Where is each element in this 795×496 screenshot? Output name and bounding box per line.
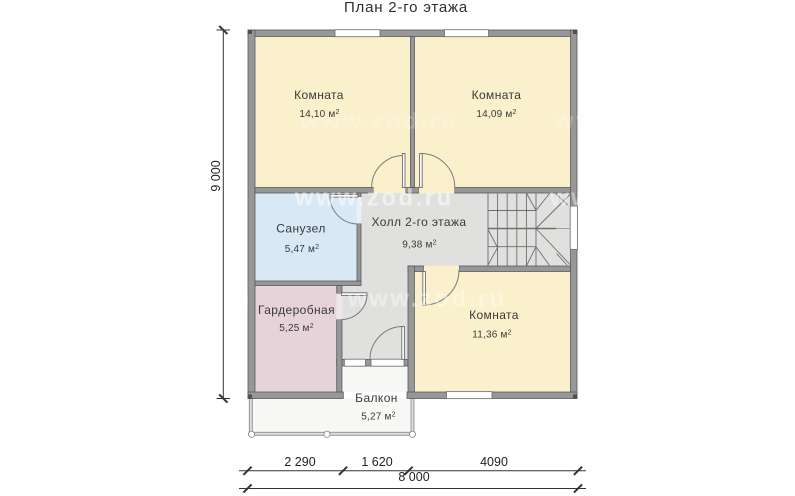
svg-text:2 290: 2 290 (284, 455, 315, 469)
svg-text:Балкон: Балкон (355, 391, 398, 405)
svg-text:www.zod.ru: www.zod.ru (549, 185, 709, 212)
svg-text:План 2-го этажа: План 2-го этажа (344, 0, 468, 16)
svg-text:4090: 4090 (480, 455, 508, 469)
svg-text:Гардеробная: Гардеробная (258, 303, 335, 317)
svg-text:9,38 м2: 9,38 м2 (402, 240, 436, 251)
svg-text:14,10 м2: 14,10 м2 (299, 109, 339, 120)
svg-text:1 620: 1 620 (361, 455, 392, 469)
svg-text:www.zod.ru: www.zod.ru (554, 108, 714, 135)
svg-text:www.zod.ru: www.zod.ru (602, 286, 762, 313)
svg-text:5,27 м2: 5,27 м2 (361, 412, 395, 423)
svg-text:Санузел: Санузел (276, 222, 326, 236)
svg-text:11,36 м2: 11,36 м2 (472, 330, 511, 341)
svg-text:Комната: Комната (294, 88, 344, 102)
svg-text:www.zod.ru: www.zod.ru (92, 286, 252, 313)
svg-text:8 000: 8 000 (398, 470, 429, 484)
svg-text:14,09 м2: 14,09 м2 (476, 109, 516, 120)
svg-text:Комната: Комната (469, 308, 519, 322)
svg-text:5,47 м2: 5,47 м2 (285, 244, 319, 255)
svg-text:Комната: Комната (472, 88, 522, 102)
svg-text:9 000: 9 000 (209, 160, 223, 191)
svg-text:Холл 2-го этажа: Холл 2-го этажа (371, 215, 466, 229)
svg-text:www.zod.ru: www.zod.ru (294, 185, 454, 212)
svg-text:5,25 м2: 5,25 м2 (279, 323, 313, 334)
